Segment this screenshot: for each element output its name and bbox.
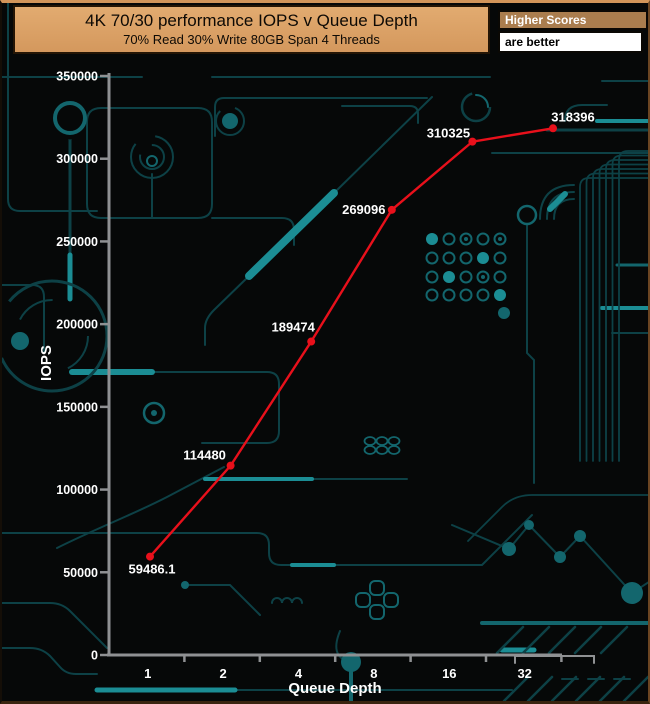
- data-point-label: 59486.1: [129, 562, 176, 577]
- x-tick-label: 16: [442, 666, 456, 681]
- higher-scores-badge: Higher Scores are better: [498, 10, 648, 53]
- y-tick-label: 0: [91, 649, 98, 663]
- x-tick-label: 8: [370, 666, 377, 681]
- data-point-label: 310325: [427, 126, 470, 141]
- series-4k-70/30-iops: 59486.1114480189474269096310325318396: [129, 109, 595, 576]
- axes: 0500001000001500002000002500003000003500…: [38, 70, 562, 698]
- series-line: [150, 128, 553, 556]
- x-axis-title: Queue Depth: [288, 680, 381, 697]
- x-tick-label: 32: [517, 666, 531, 681]
- x-tick-label: 1: [144, 666, 151, 681]
- data-point-label: 318396: [551, 109, 594, 124]
- x-tick-label: 4: [295, 666, 303, 681]
- chart-subtitle: 70% Read 30% Write 80GB Span 4 Threads: [123, 31, 380, 48]
- data-point: [549, 124, 557, 132]
- y-tick-label: 350000: [56, 70, 98, 84]
- data-point-label: 269096: [342, 202, 385, 217]
- iops-line-chart: 0500001000001500002000002500003000003500…: [2, 3, 650, 704]
- data-point-label: 114480: [183, 448, 226, 463]
- data-point: [307, 338, 315, 346]
- y-tick-label: 200000: [56, 318, 98, 332]
- data-point: [146, 553, 154, 561]
- badge-subtitle: are better: [498, 31, 643, 53]
- chart-frame: 0500001000001500002000002500003000003500…: [0, 0, 650, 704]
- y-tick-label: 150000: [56, 400, 98, 414]
- badge-title: Higher Scores: [498, 10, 648, 30]
- data-point: [388, 206, 396, 214]
- data-point: [227, 462, 235, 470]
- chart-title: 4K 70/30 performance IOPS v Queue Depth: [85, 11, 418, 31]
- y-tick-label: 250000: [56, 235, 98, 249]
- y-tick-label: 100000: [56, 483, 98, 497]
- data-point-label: 189474: [272, 320, 316, 335]
- y-axis-title: IOPS: [38, 345, 55, 381]
- y-tick-label: 300000: [56, 152, 98, 166]
- x-tick-label: 2: [219, 666, 226, 681]
- y-tick-label: 50000: [63, 566, 98, 580]
- chart-title-box: 4K 70/30 performance IOPS v Queue Depth …: [13, 5, 490, 54]
